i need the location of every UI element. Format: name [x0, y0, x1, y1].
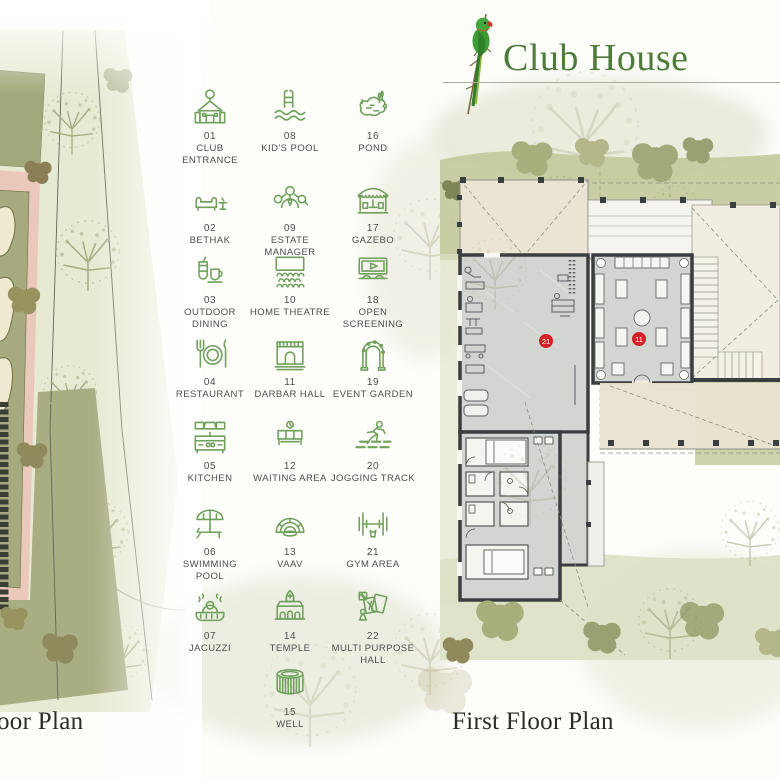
legend-item-gym-area: 21 GYM AREA [330, 502, 416, 586]
swimming-pool-icon [188, 502, 232, 546]
multi-purpose-hall-icon [351, 586, 395, 630]
legend-item-bethak: 02 BETHAK [170, 178, 250, 250]
home-theatre-icon [268, 250, 312, 294]
vaav-stepwell-icon [268, 502, 312, 546]
legend-item-well: 15 WELL [250, 662, 330, 731]
legend-item-kids-pool: 08 KID'S POOL [250, 86, 330, 178]
legend-item-home-theatre: 10 HOME THEATRE [250, 250, 330, 332]
legend-item-kitchen: 05 KITCHEN [170, 416, 250, 502]
legend-item-jogging-track: 20 JOGGING TRACK [330, 416, 416, 502]
legend-item-multi-purpose-hall: 22 MULTI PURPOSE HALL [330, 586, 416, 662]
legend-item-swimming-pool: 06 SWIMMING POOL [170, 502, 250, 586]
open-screening-icon [351, 250, 395, 294]
well-icon [268, 662, 312, 706]
amenities-legend: 01 CLUB ENTRANCE 08 KID'S POOL 16 POND [170, 86, 416, 731]
estate-manager-icon [268, 178, 312, 222]
legend-item-darbar-hall: 11 DARBAR HALL [250, 332, 330, 416]
title-underline [443, 82, 780, 83]
legend-item-outdoor-dining: 03 OUTDOOR DINING [170, 250, 250, 332]
jogging-track-icon [351, 416, 395, 460]
room-marker-darbar-hall: 11 [632, 332, 646, 346]
legend-item-club-entrance: 01 CLUB ENTRANCE [170, 86, 250, 178]
room-marker-gym: 21 [539, 334, 553, 348]
parrot-illustration [455, 8, 507, 120]
legend-item-vaav: 13 VAAV [250, 502, 330, 586]
first-floor-plan: 21 11 [440, 137, 780, 663]
legend-item-jacuzzi: 07 JACUZZI [170, 586, 250, 662]
outdoor-dining-icon [188, 250, 232, 294]
page-title: Club House [503, 36, 780, 80]
waiting-area-icon [268, 416, 312, 460]
gym-area-icon [351, 502, 395, 546]
event-garden-icon [351, 332, 395, 376]
svg-text:21: 21 [542, 337, 550, 346]
legend-item-event-garden: 19 EVENT GARDEN [330, 332, 416, 416]
legend-item-restaurant: 04 RESTAURANT [170, 332, 250, 416]
first-floor-plan-caption: First Floor Plan [452, 708, 614, 736]
gazebo-icon [351, 178, 395, 222]
temple-icon [268, 586, 312, 630]
club-entrance-icon [188, 86, 232, 130]
restaurant-icon [188, 332, 232, 376]
bethak-sofa-icon [188, 178, 232, 222]
kids-pool-icon [268, 86, 312, 130]
legend-item-open-screening: 18 OPEN SCREENING [330, 250, 416, 332]
darbar-hall-icon [268, 332, 312, 376]
legend-item-pond: 16 POND [330, 86, 416, 178]
pond-icon [351, 86, 395, 130]
svg-text:11: 11 [635, 335, 643, 344]
brochure-page: 21 11 Club House [0, 0, 780, 780]
legend-item-estate-manager: 09 ESTATE MANAGER [250, 178, 330, 250]
ground-floor-plan-caption: oor Plan [0, 708, 83, 736]
kitchen-icon [188, 416, 232, 460]
legend-item-gazebo: 17 GAZEBO [330, 178, 416, 250]
legend-item-temple: 14 TEMPLE [250, 586, 330, 662]
jacuzzi-icon [188, 586, 232, 630]
legend-item-waiting-area: 12 WAITING AREA [250, 416, 330, 502]
